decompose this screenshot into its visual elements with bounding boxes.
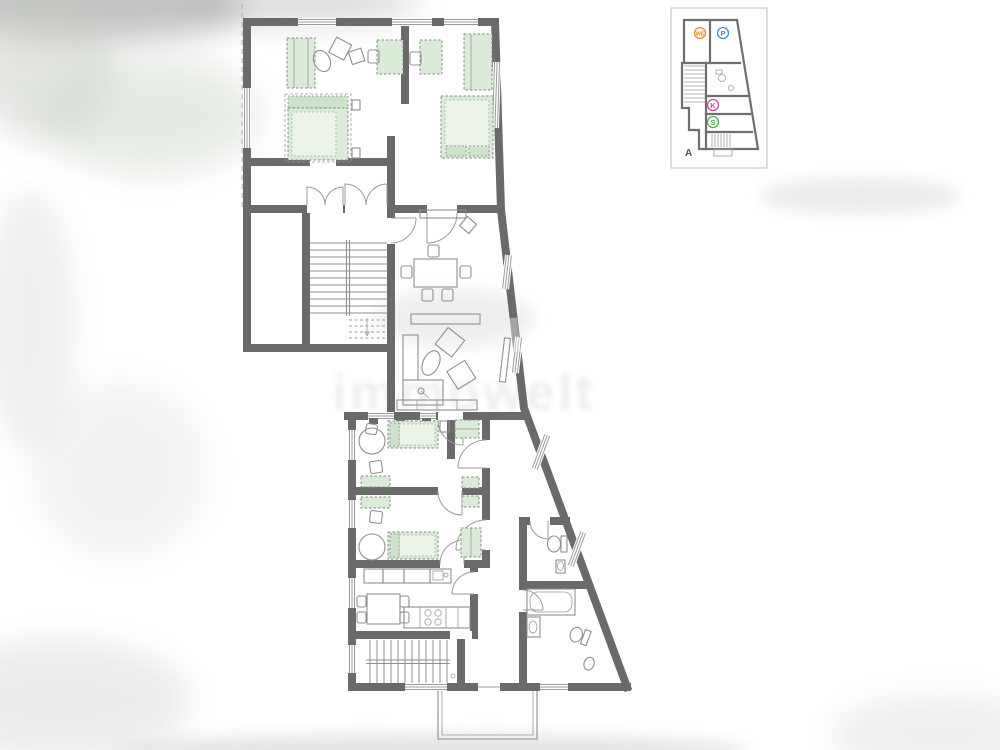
desk-chair [369, 510, 382, 523]
window [405, 683, 447, 691]
toilet-tank [561, 536, 567, 552]
desk-chair [410, 52, 421, 65]
double-door-left [307, 187, 343, 205]
bidet [582, 656, 596, 672]
door-gap [530, 517, 550, 525]
chair [357, 596, 366, 607]
window [298, 18, 336, 26]
room-top-left [285, 37, 403, 162]
door-gap [519, 590, 527, 612]
mini-stair-hatch-lower [712, 134, 730, 147]
stair-arrow [365, 318, 370, 336]
desk [361, 476, 390, 487]
door-gap [440, 560, 464, 568]
pillow [446, 146, 466, 156]
stove-burner [425, 619, 431, 625]
chair [357, 612, 366, 623]
chair [428, 245, 439, 257]
smudge-left-green [40, 55, 260, 175]
stool [348, 48, 364, 64]
door-gap [345, 205, 387, 213]
door-gap [482, 520, 490, 550]
watermark: immowelt [332, 288, 596, 422]
radiator-nub [369, 418, 378, 424]
window [392, 18, 432, 26]
wc-room [548, 536, 568, 573]
bedroom-a [359, 418, 479, 488]
counter-unit [383, 569, 404, 583]
bed-headboard-band [288, 96, 348, 108]
door-gap [438, 412, 463, 420]
smudge-bottom-right [830, 695, 1000, 750]
chair [401, 266, 412, 278]
counter-unit [364, 569, 383, 583]
dining-table [414, 259, 457, 287]
badge-storage: S [708, 117, 719, 128]
desk-chair [369, 460, 383, 474]
door-gap [470, 572, 478, 594]
window [540, 683, 568, 691]
chair [460, 266, 471, 278]
door-gap [450, 631, 472, 639]
badge-unit: WE [695, 28, 706, 39]
desk [377, 40, 403, 74]
bathroom [527, 589, 596, 671]
floorplan-image: immowelt [0, 0, 1000, 750]
wardrobe-small [462, 477, 479, 488]
window [243, 88, 251, 148]
stair-arrow-start [451, 674, 455, 678]
kitchen-table [367, 594, 400, 624]
bidet-bowl [582, 656, 596, 672]
desk [420, 40, 442, 74]
smudge-right [760, 178, 960, 214]
balcony-outline [438, 691, 537, 739]
wardrobe-small [462, 496, 479, 507]
double-door-right [345, 184, 387, 205]
smudge-left-lower [30, 380, 210, 560]
kitchen [357, 569, 470, 628]
stairwell-lower [366, 640, 455, 683]
counter-unit [404, 569, 430, 583]
sofa [464, 34, 492, 90]
faucet [444, 573, 448, 577]
balcony [438, 691, 537, 739]
door-gap [307, 205, 343, 213]
stair-treads [310, 243, 387, 313]
bedroom-b [359, 496, 481, 560]
door-gap [482, 440, 490, 468]
inset-keyplan: WE P K S A [671, 8, 767, 168]
window [444, 18, 478, 26]
badge-label: WE [696, 32, 705, 38]
desk [361, 497, 390, 508]
bed-mattress [445, 100, 489, 146]
chair [400, 596, 409, 607]
pillow [390, 423, 399, 446]
toilet [568, 625, 591, 646]
smudge-bottom-band [110, 734, 750, 750]
window [348, 645, 356, 673]
inset-section-label: A [685, 148, 692, 159]
plant [460, 217, 477, 234]
badge-label: S [710, 118, 715, 127]
toilet-bowl [548, 536, 561, 552]
badge-label: K [710, 101, 716, 110]
bed-mattress [399, 535, 435, 556]
door-bedroomA [458, 440, 486, 468]
stove-burner [435, 610, 441, 616]
stair-stringer [366, 660, 450, 664]
bed-mattress [399, 424, 435, 445]
pillow [390, 534, 399, 557]
nightstand [352, 100, 360, 110]
wall-highlight [513, 318, 517, 352]
door-gap [387, 218, 395, 244]
badge-label: P [720, 29, 725, 38]
pillow [469, 146, 489, 156]
stairwell-upper [310, 240, 387, 338]
badge-cellar: K [708, 100, 719, 111]
window [348, 578, 356, 608]
badge-parking: P [718, 28, 729, 39]
round-table [359, 534, 385, 560]
basin-bowl [529, 621, 537, 633]
window [348, 430, 356, 460]
window [348, 500, 356, 528]
room-top-right [410, 34, 493, 158]
door-gap [427, 205, 457, 213]
round-table [359, 428, 385, 454]
sink-basin [433, 571, 443, 580]
basin-bowl [558, 562, 564, 571]
floorplan-svg: immowelt [0, 0, 1000, 750]
sofa [287, 38, 315, 88]
stove-burner [425, 610, 431, 616]
smudge-bottom-left [0, 640, 190, 750]
balcony-inner-line [442, 691, 533, 735]
nightstand [352, 148, 360, 158]
stove-burner [435, 619, 441, 625]
toilet-bowl [568, 626, 584, 644]
bed-mattress [292, 112, 336, 156]
door-gap [438, 487, 462, 495]
stool [329, 37, 352, 60]
stair-treads [370, 640, 447, 683]
